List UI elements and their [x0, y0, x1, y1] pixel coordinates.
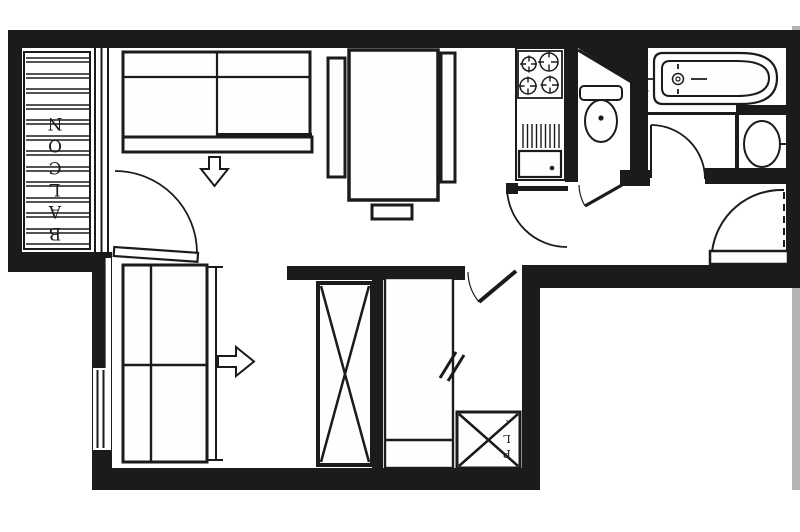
- closet-label: PL.: [490, 419, 514, 461]
- sofa-bed-body: [123, 265, 207, 462]
- stool: [372, 205, 412, 219]
- glazing-line: [107, 48, 109, 253]
- wall-inner-face-line: [104, 258, 106, 368]
- balcony-label: BALCON: [27, 131, 65, 243]
- entrance-threshold: [710, 251, 788, 264]
- sink-unit: [519, 151, 561, 177]
- wardrobe: [318, 283, 372, 465]
- wall-wc-bath-divider: [630, 48, 648, 182]
- wall-inner-face: [105, 258, 111, 368]
- wall-hall-bottom: [522, 265, 800, 288]
- window-mullion: [103, 370, 105, 448]
- glazing-line: [94, 48, 96, 253]
- dining-table: [349, 50, 438, 200]
- wall-kitchen-edge: [506, 186, 568, 191]
- wall-cabin-right: [522, 268, 540, 470]
- toilet-bowl: [585, 100, 617, 142]
- glazing-line: [101, 48, 103, 253]
- sofa-front-rail: [123, 137, 312, 152]
- wall-bottom: [92, 468, 540, 490]
- floor-plan-drawing: [0, 0, 800, 532]
- floor-plan-page: BALCON PL.: [0, 0, 800, 532]
- window-opening: [93, 368, 111, 450]
- wall-basin-top: [736, 105, 788, 115]
- wall-balcony-left: [8, 30, 22, 272]
- wall-top: [8, 30, 792, 48]
- wall-kitchen-wc-divider: [565, 48, 578, 182]
- bunk-bed: [385, 278, 464, 468]
- wall-bath-inner-line: [648, 112, 738, 115]
- bench-left: [328, 58, 345, 177]
- wall-bath-bottom-right: [705, 168, 788, 184]
- wall-right: [786, 30, 800, 288]
- kitchenette: [516, 48, 565, 180]
- sink-knob: [550, 166, 555, 171]
- wall-basin-partition: [735, 112, 739, 172]
- bench-right: [441, 53, 455, 182]
- window-mullion: [97, 370, 99, 448]
- toilet-drain: [598, 115, 603, 120]
- toilet-tank: [580, 86, 622, 100]
- wall-bath-bottom-left: [620, 170, 650, 186]
